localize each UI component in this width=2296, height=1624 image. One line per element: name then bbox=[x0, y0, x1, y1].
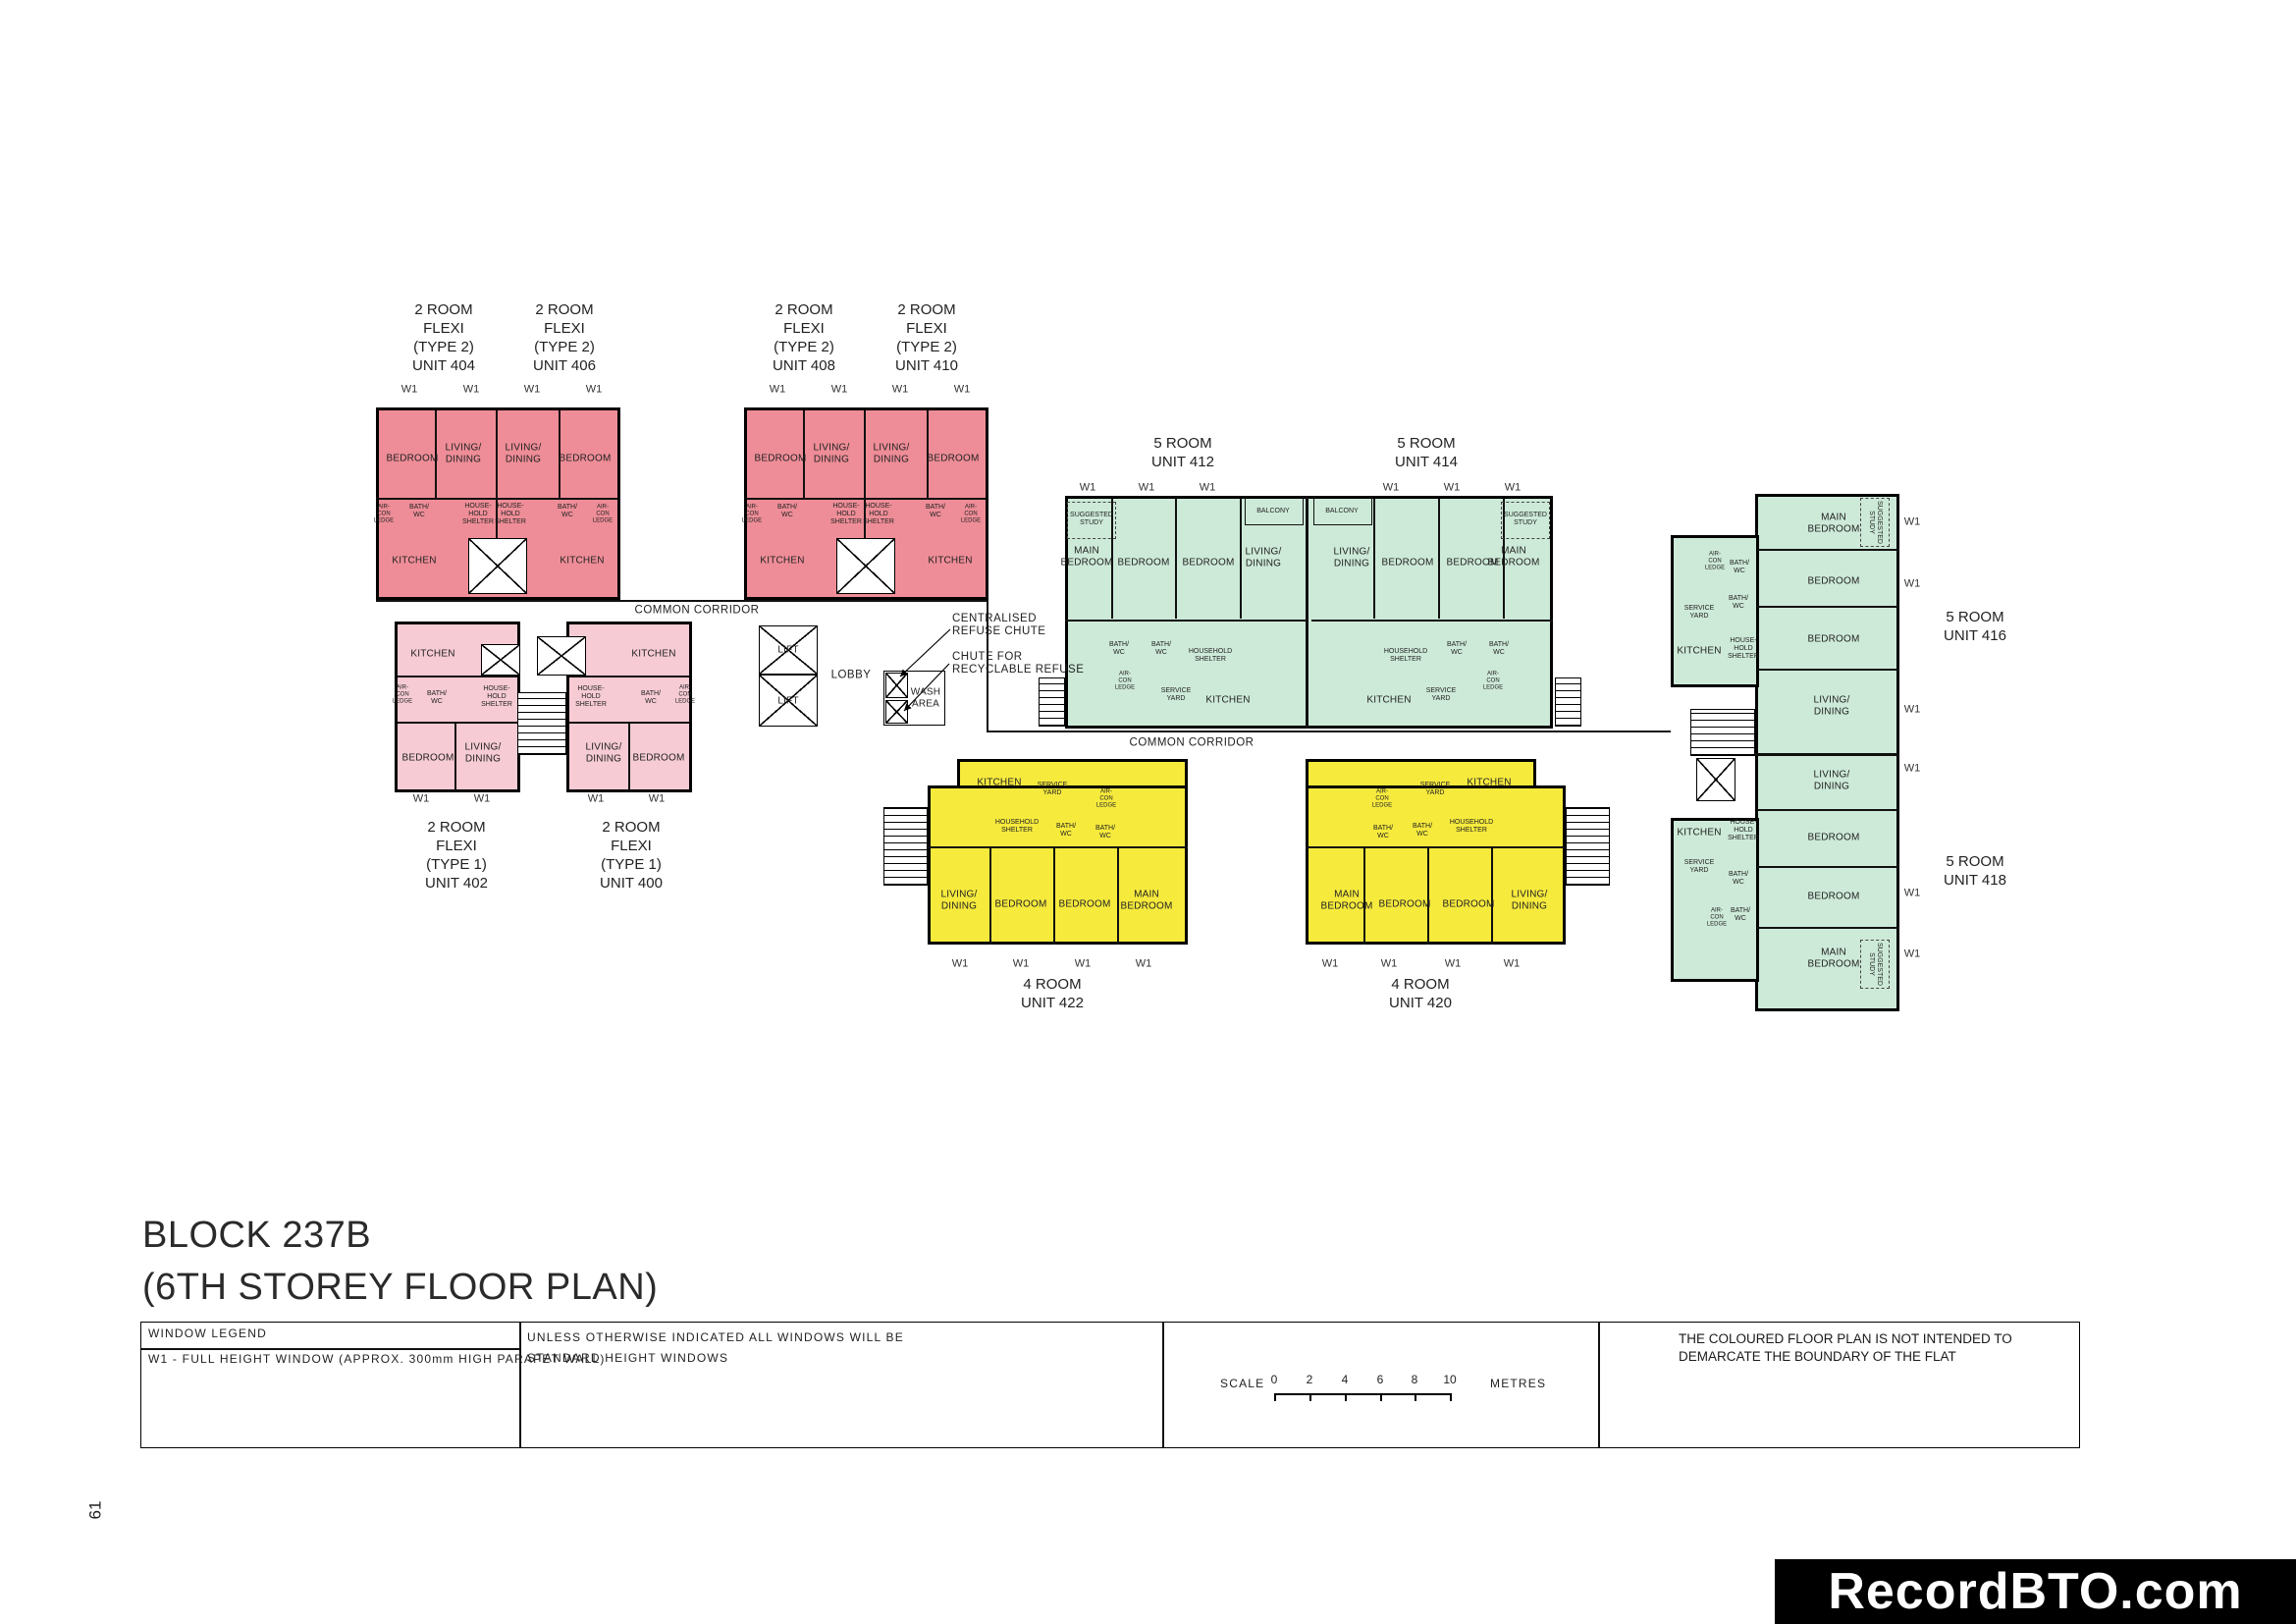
room-label-main-bedroom: MAIN BEDROOM bbox=[1807, 947, 1859, 970]
room-label-living-dining: LIVING/ DINING bbox=[1512, 890, 1548, 912]
window-marker-w1: W1 bbox=[954, 384, 971, 397]
recordbto-watermark: RecordBTO.com bbox=[1775, 1559, 2296, 1624]
common-corridor-label: COMMON CORRIDOR bbox=[1130, 736, 1255, 749]
window-marker-w1: W1 bbox=[1200, 482, 1216, 495]
room-label-bath-wc: BATH/ WC bbox=[558, 504, 577, 519]
room-label-household-shelter: HOUSE- HOLD SHELTER bbox=[1728, 819, 1759, 842]
room-label-bedroom: BEDROOM bbox=[632, 752, 684, 764]
window-marker-w1: W1 bbox=[1904, 763, 1921, 776]
room-label-household-shelter: HOUSEHOLD SHELTER bbox=[1189, 648, 1232, 664]
window-marker-w1: W1 bbox=[524, 384, 541, 397]
room-label-household-shelter: HOUSEHOLD SHELTER bbox=[1384, 648, 1427, 664]
staircase bbox=[1566, 807, 1610, 886]
room-label-bedroom: BEDROOM bbox=[1378, 898, 1430, 910]
unit-title-422: 4 ROOM UNIT 422 bbox=[1021, 975, 1084, 1012]
room-label-household-shelter: HOUSE- HOLD SHELTER bbox=[481, 685, 512, 709]
room-label-service-yard: SERVICE YARD bbox=[1420, 782, 1451, 797]
room-label-suggested-study: SUGGESTED STUDY bbox=[1504, 512, 1547, 527]
room-label-aircon-ledge: AIR- CON LEDGE bbox=[1372, 789, 1392, 810]
room-label-household-shelter: HOUSE- HOLD SHELTER bbox=[863, 503, 894, 526]
scale-unit: METRES bbox=[1490, 1377, 1546, 1390]
room-label-balcony: BALCONY bbox=[1325, 508, 1358, 515]
room-label-kitchen: KITCHEN bbox=[977, 777, 1021, 788]
room-label-bath-wc: BATH/ WC bbox=[1729, 871, 1748, 887]
room-label-aircon-ledge: AIR- CON LEDGE bbox=[1096, 789, 1116, 810]
room-label-living-dining: LIVING/ DINING bbox=[465, 742, 502, 765]
room-label-bath-wc: BATH/ WC bbox=[1731, 907, 1750, 923]
room-label-aircon-ledge: AIR- CON LEDGE bbox=[1705, 552, 1725, 572]
room-label-bath-wc: BATH/ WC bbox=[777, 504, 797, 519]
window-marker-w1: W1 bbox=[1444, 482, 1461, 495]
windows-note: UNLESS OTHERWISE INDICATED ALL WINDOWS W… bbox=[527, 1327, 904, 1369]
room-label-bath-wc: BATH/ WC bbox=[1373, 825, 1393, 840]
room-label-bedroom: BEDROOM bbox=[1807, 633, 1859, 645]
room-label-kitchen: KITCHEN bbox=[392, 555, 436, 567]
unit-title-412: 5 ROOM UNIT 412 bbox=[1151, 434, 1214, 471]
window-marker-w1: W1 bbox=[413, 793, 430, 806]
room-label-household-shelter: HOUSE- HOLD SHELTER bbox=[830, 503, 862, 526]
room-label-living-dining: LIVING/ DINING bbox=[814, 443, 850, 465]
room-label-service-yard: SERVICE YARD bbox=[1684, 605, 1715, 621]
unit-title-418: 5 ROOM UNIT 418 bbox=[1944, 852, 2006, 890]
room-label-bedroom: BEDROOM bbox=[994, 898, 1046, 910]
scale-tick-8: 8 bbox=[1412, 1373, 1418, 1386]
room-label-service-yard: SERVICE YARD bbox=[1426, 687, 1457, 703]
service-shaft bbox=[836, 538, 895, 594]
room-label-suggested-study: SUGGESTED STUDY bbox=[1070, 512, 1113, 527]
room-label-living-dining: LIVING/ DINING bbox=[446, 443, 482, 465]
unit-420-main-block bbox=[1306, 785, 1566, 945]
room-label-bath-wc: BATH/ WC bbox=[1447, 641, 1467, 657]
room-label-kitchen: KITCHEN bbox=[760, 555, 804, 567]
room-label-bath-wc: BATH/ WC bbox=[1729, 595, 1748, 611]
window-marker-w1: W1 bbox=[649, 793, 666, 806]
corridor-line-top bbox=[376, 600, 988, 602]
coloured-plan-disclaimer: THE COLOURED FLOOR PLAN IS NOT INTENDED … bbox=[1679, 1330, 2012, 1366]
window-marker-w1: W1 bbox=[1013, 958, 1030, 971]
recordbto-watermark-text: RecordBTO.com bbox=[1828, 1562, 2242, 1621]
window-marker-w1: W1 bbox=[1080, 482, 1096, 495]
room-label-household-shelter: HOUSE- HOLD SHELTER bbox=[495, 503, 526, 526]
room-label-bath-wc: BATH/ WC bbox=[1413, 823, 1432, 839]
window-marker-w1: W1 bbox=[1381, 958, 1398, 971]
scale-bar bbox=[1274, 1393, 1450, 1395]
room-label-bedroom: BEDROOM bbox=[1058, 898, 1110, 910]
room-label-bedroom: BEDROOM bbox=[927, 453, 979, 464]
room-label-main-bedroom: MAIN BEDROOM bbox=[1120, 890, 1172, 912]
staircase bbox=[1690, 709, 1755, 756]
room-label-main-bedroom: MAIN BEDROOM bbox=[1807, 513, 1859, 535]
window-marker-w1: W1 bbox=[892, 384, 909, 397]
room-label-bath-wc: BATH/ WC bbox=[427, 690, 447, 706]
staircase bbox=[883, 807, 928, 886]
unit-title-404: 2 ROOM FLEXI (TYPE 2) UNIT 404 bbox=[412, 300, 475, 375]
room-label-bedroom: BEDROOM bbox=[401, 752, 454, 764]
room-label-living-dining: LIVING/ DINING bbox=[1814, 695, 1850, 718]
room-label-aircon-ledge: AIR- CON LEDGE bbox=[593, 505, 613, 525]
lift-label: LIFT bbox=[777, 644, 798, 656]
room-label-living-dining: LIVING/ DINING bbox=[506, 443, 542, 465]
room-label-bedroom: BEDROOM bbox=[1807, 575, 1859, 587]
room-label-household-shelter: HOUSE- HOLD SHELTER bbox=[575, 685, 607, 709]
staircase bbox=[1555, 677, 1581, 727]
unit-412-414-block bbox=[1065, 496, 1553, 729]
window-marker-w1: W1 bbox=[586, 384, 603, 397]
lift-shaft bbox=[1696, 758, 1735, 801]
unit-title-402: 2 ROOM FLEXI (TYPE 1) UNIT 402 bbox=[425, 818, 488, 893]
wash-area-label: WASH AREA bbox=[911, 687, 940, 710]
scale-label: SCALE bbox=[1220, 1377, 1264, 1390]
window-marker-w1: W1 bbox=[1139, 482, 1155, 495]
scale-tick-0: 0 bbox=[1271, 1373, 1278, 1386]
room-label-household-shelter: HOUSEHOLD SHELTER bbox=[1450, 819, 1493, 835]
window-marker-w1: W1 bbox=[1504, 958, 1521, 971]
room-label-service-yard: SERVICE YARD bbox=[1161, 687, 1192, 703]
room-label-aircon-ledge: AIR- CON LEDGE bbox=[742, 505, 762, 525]
room-label-bath-wc: BATH/ WC bbox=[1730, 560, 1749, 575]
room-label-bath-wc: BATH/ WC bbox=[641, 690, 661, 706]
room-label-bedroom: BEDROOM bbox=[386, 453, 438, 464]
room-label-main-bedroom: MAIN BEDROOM bbox=[1060, 546, 1112, 568]
window-marker-w1: W1 bbox=[1904, 948, 1921, 961]
unit-422-main-block bbox=[928, 785, 1188, 945]
recyclable-refuse-chute-label: CHUTE FOR RECYCLABLE REFUSE bbox=[952, 651, 1084, 677]
unit-title-414: 5 ROOM UNIT 414 bbox=[1395, 434, 1458, 471]
room-label-living-dining: LIVING/ DINING bbox=[1334, 547, 1370, 569]
room-label-household-shelter: HOUSE- HOLD SHELTER bbox=[462, 503, 494, 526]
service-shaft bbox=[537, 636, 586, 676]
scale-tick-2: 2 bbox=[1307, 1373, 1313, 1386]
corridor-line-bottom bbox=[987, 731, 1671, 732]
lift-label: LIFT bbox=[777, 695, 798, 707]
page-title: BLOCK 237B (6TH STOREY FLOOR PLAN) bbox=[142, 1210, 658, 1314]
window-marker-w1: W1 bbox=[831, 384, 848, 397]
room-label-kitchen: KITCHEN bbox=[410, 648, 454, 660]
window-marker-w1: W1 bbox=[474, 793, 491, 806]
room-label-household-shelter: HOUSEHOLD SHELTER bbox=[995, 819, 1039, 835]
room-label-bath-wc: BATH/ WC bbox=[1056, 823, 1076, 839]
window-marker-w1: W1 bbox=[588, 793, 605, 806]
room-label-living-dining: LIVING/ DINING bbox=[1246, 547, 1282, 569]
window-marker-w1: W1 bbox=[1904, 888, 1921, 900]
page-number: 61 bbox=[85, 1501, 105, 1520]
room-label-bath-wc: BATH/ WC bbox=[1095, 825, 1115, 840]
room-label-main-bedroom: MAIN BEDROOM bbox=[1487, 546, 1539, 568]
room-label-aircon-ledge: AIR- CON LEDGE bbox=[675, 685, 695, 706]
unit-title-416: 5 ROOM UNIT 416 bbox=[1944, 608, 2006, 645]
lift-shaft: LIFT bbox=[759, 675, 818, 727]
centralised-refuse-chute-label: CENTRALISED REFUSE CHUTE bbox=[952, 613, 1045, 638]
staircase bbox=[517, 692, 566, 755]
room-label-main-bedroom: MAIN BEDROOM bbox=[1320, 890, 1372, 912]
room-label-kitchen: KITCHEN bbox=[1467, 777, 1511, 788]
room-label-balcony: BALCONY bbox=[1256, 508, 1289, 515]
room-label-living-dining: LIVING/ DINING bbox=[941, 890, 978, 912]
lift-shaft: LIFT bbox=[759, 625, 818, 675]
room-label-bedroom: BEDROOM bbox=[1117, 557, 1169, 568]
service-shaft bbox=[481, 644, 520, 676]
room-label-kitchen: KITCHEN bbox=[631, 648, 675, 660]
room-label-kitchen: KITCHEN bbox=[560, 555, 604, 567]
service-shaft bbox=[468, 538, 527, 594]
window-marker-w1: W1 bbox=[1904, 704, 1921, 717]
window-marker-w1: W1 bbox=[1136, 958, 1152, 971]
room-label-aircon-ledge: AIR- CON LEDGE bbox=[961, 505, 981, 525]
window-marker-w1: W1 bbox=[463, 384, 480, 397]
room-label-bedroom: BEDROOM bbox=[754, 453, 806, 464]
room-label-bath-wc: BATH/ WC bbox=[409, 504, 429, 519]
room-label-bath-wc: BATH/ WC bbox=[926, 504, 945, 519]
window-legend-title: WINDOW LEGEND bbox=[148, 1326, 267, 1340]
room-label-living-dining: LIVING/ DINING bbox=[586, 742, 622, 765]
room-label-service-yard: SERVICE YARD bbox=[1684, 859, 1715, 875]
room-label-bath-wc: BATH/ WC bbox=[1489, 641, 1509, 657]
room-label-aircon-ledge: AIR- CON LEDGE bbox=[1707, 908, 1727, 929]
room-label-household-shelter: HOUSE- HOLD SHELTER bbox=[1728, 637, 1759, 661]
window-marker-w1: W1 bbox=[1904, 578, 1921, 591]
room-label-bedroom: BEDROOM bbox=[1807, 891, 1859, 902]
room-label-aircon-ledge: AIR- CON LEDGE bbox=[374, 505, 394, 525]
room-label-aircon-ledge: AIR- CON LEDGE bbox=[1483, 672, 1503, 692]
room-label-bedroom: BEDROOM bbox=[1381, 557, 1433, 568]
window-marker-w1: W1 bbox=[1445, 958, 1462, 971]
unit-title-420: 4 ROOM UNIT 420 bbox=[1389, 975, 1452, 1012]
room-label-suggested-study: SUGGESTED STUDY bbox=[1867, 943, 1883, 986]
room-label-living-dining: LIVING/ DINING bbox=[874, 443, 910, 465]
room-label-bedroom: BEDROOM bbox=[1442, 898, 1494, 910]
room-label-living-dining: LIVING/ DINING bbox=[1814, 770, 1850, 792]
window-marker-w1: W1 bbox=[401, 384, 418, 397]
unit-title-400: 2 ROOM FLEXI (TYPE 1) UNIT 400 bbox=[600, 818, 663, 893]
room-label-suggested-study: SUGGESTED STUDY bbox=[1867, 501, 1883, 544]
floor-plan-page: { "page": { "number": "61", "brand": "Re… bbox=[0, 0, 2296, 1624]
room-label-bath-wc: BATH/ WC bbox=[1109, 641, 1129, 657]
unit-title-410: 2 ROOM FLEXI (TYPE 2) UNIT 410 bbox=[895, 300, 958, 375]
window-marker-w1: W1 bbox=[952, 958, 969, 971]
window-marker-w1: W1 bbox=[1075, 958, 1092, 971]
room-label-aircon-ledge: AIR- CON LEDGE bbox=[1115, 672, 1135, 692]
room-label-bedroom: BEDROOM bbox=[559, 453, 611, 464]
room-label-kitchen: KITCHEN bbox=[1366, 694, 1411, 706]
window-marker-w1: W1 bbox=[1505, 482, 1522, 495]
common-corridor-label: COMMON CORRIDOR bbox=[635, 604, 760, 617]
scale-tick-4: 4 bbox=[1342, 1373, 1349, 1386]
room-label-kitchen: KITCHEN bbox=[1205, 694, 1250, 706]
room-label-bedroom: BEDROOM bbox=[1182, 557, 1234, 568]
window-marker-w1: W1 bbox=[1383, 482, 1400, 495]
room-label-kitchen: KITCHEN bbox=[1677, 827, 1721, 839]
room-label-service-yard: SERVICE YARD bbox=[1038, 782, 1068, 797]
room-label-aircon-ledge: AIR- CON LEDGE bbox=[393, 685, 412, 706]
room-label-bedroom: BEDROOM bbox=[1807, 832, 1859, 843]
scale-tick-10: 10 bbox=[1443, 1373, 1456, 1386]
room-label-kitchen: KITCHEN bbox=[1677, 645, 1721, 657]
lobby-label: LOBBY bbox=[831, 669, 872, 681]
unit-title-406: 2 ROOM FLEXI (TYPE 2) UNIT 406 bbox=[533, 300, 596, 375]
unit-title-408: 2 ROOM FLEXI (TYPE 2) UNIT 408 bbox=[773, 300, 835, 375]
window-marker-w1: W1 bbox=[1322, 958, 1339, 971]
room-label-bath-wc: BATH/ WC bbox=[1151, 641, 1171, 657]
window-marker-w1: W1 bbox=[1904, 516, 1921, 529]
room-label-kitchen: KITCHEN bbox=[928, 555, 972, 567]
window-marker-w1: W1 bbox=[770, 384, 786, 397]
scale-tick-6: 6 bbox=[1377, 1373, 1384, 1386]
